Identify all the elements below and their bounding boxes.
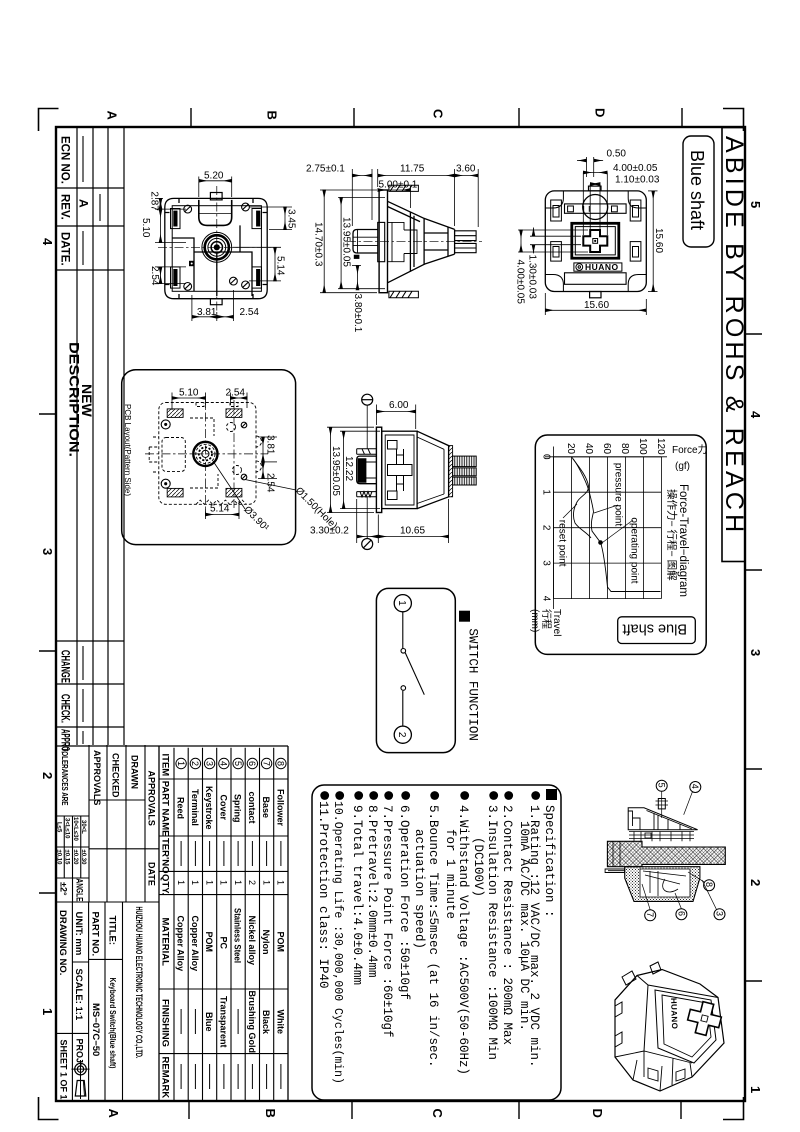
svg-text:HUANO: HUANO [669,998,679,1030]
svg-text:CHANGE.: CHANGE. [59,650,71,685]
svg-text:6: 6 [676,911,686,916]
svg-text:7: 7 [645,912,655,917]
svg-text:40: 40 [583,443,594,455]
svg-text:PART NO.: PART NO. [90,912,101,957]
svg-text:1.10±0.03: 1.10±0.03 [615,175,660,186]
svg-text:7: 7 [261,761,271,766]
svg-text:120: 120 [655,438,666,455]
svg-text:DATE: DATE [147,862,157,886]
svg-text:4: 4 [541,596,552,602]
svg-text:3: 3 [40,548,55,555]
svg-text:5.14: 5.14 [275,256,286,276]
svg-text:TER'NO: TER'NO [160,838,171,874]
svg-text:POM: POM [204,932,214,953]
svg-text:HUANO: HUANO [585,262,619,272]
svg-text:1: 1 [176,761,186,766]
svg-text:±0.30: ±0.30 [80,850,86,866]
svg-text:Reed: Reed [176,797,186,819]
svg-text:9.Total travel:4.0±0.4mm: 9.Total travel:4.0±0.4mm [350,805,364,985]
svg-text:6.Operation Force :50±10gf: 6.Operation Force :50±10gf [397,805,411,1000]
svg-text:5: 5 [657,783,667,788]
svg-text:PCB Layout(Pattern Side): PCB Layout(Pattern Side) [123,404,132,496]
svg-text:2: 2 [541,525,552,531]
svg-text:B: B [263,1109,278,1118]
svg-text:Terminal: Terminal [190,789,200,826]
svg-text:3.Insulation Resistance :100MΩ: 3.Insulation Resistance :100MΩ Min [485,805,499,1060]
svg-text:5.Bounce Time:≤5msec (at 16 in: 5.Bounce Time:≤5msec (at 16 in/sec. [426,805,440,1068]
svg-text:operating point: operating point [628,517,639,583]
svg-text:5: 5 [233,761,243,766]
svg-text:FINISHING: FINISHING [160,999,171,1047]
svg-text:ANGLE: ANGLE [75,879,85,902]
svg-text:4.00±0.05: 4.00±0.05 [613,163,658,174]
svg-text:D: D [593,108,608,117]
svg-text:5.00±0.1: 5.00±0.1 [379,180,418,191]
svg-text:ABIDE BY ROHS & REACH: ABIDE BY ROHS & REACH [720,136,748,536]
svg-text:2: 2 [396,732,407,738]
svg-text:行程: 行程 [540,609,553,629]
svg-text:14.70±0.3: 14.70±0.3 [313,222,324,267]
svg-text:2.87: 2.87 [149,191,160,211]
svg-text:B: B [265,111,280,120]
svg-text:Copper Alloy: Copper Alloy [176,916,186,972]
svg-text:1: 1 [276,880,286,885]
svg-text:Nickel alloy: Nickel alloy [247,916,257,966]
svg-text:Black: Black [261,1010,271,1035]
svg-text:11.Protection class: IP40: 11.Protection class: IP40 [316,801,330,989]
svg-text:SWITCH FUNCTION: SWITCH FUNCTION [466,628,480,741]
svg-text:11.75: 11.75 [400,164,425,175]
svg-text:Nylon: Nylon [261,930,271,955]
svg-text:3: 3 [748,649,763,656]
svg-text:Base: Base [261,797,271,819]
svg-text:Stainless Steel: Stainless Steel [233,908,243,963]
svg-text:(DC100V): (DC100V) [471,837,485,897]
svg-text:1: 1 [748,1086,763,1093]
svg-text:White: White [275,1010,285,1035]
svg-text:C: C [430,1109,445,1119]
svg-text:Copper Alloy: Copper Alloy [190,916,200,972]
svg-text:2: 2 [40,772,55,779]
svg-text:3: 3 [714,911,724,916]
svg-text:4: 4 [748,411,763,419]
svg-text:for 1 minute: for 1 minute [443,829,457,919]
svg-text:4: 4 [219,761,229,766]
svg-text:2.75±0.1: 2.75±0.1 [306,164,345,175]
svg-text:2: 2 [247,880,257,885]
svg-text:ECN NO.: ECN NO. [59,136,71,184]
svg-text:4.00±0.05: 4.00±0.05 [515,260,526,305]
svg-text:20: 20 [565,443,576,455]
svg-text:A: A [106,1109,121,1119]
svg-text:±2°: ±2° [59,882,69,896]
svg-text:Force力: Force力 [672,443,708,456]
svg-text:6.00: 6.00 [389,400,409,411]
svg-text:2.54: 2.54 [240,307,260,318]
svg-text:1: 1 [233,880,243,885]
svg-text:3<L≤10: 3<L≤10 [64,818,70,839]
svg-text:Cover: Cover [218,795,228,821]
svg-text:1: 1 [219,880,229,885]
svg-text:±0.10: ±0.10 [55,850,61,866]
svg-text:CHECKED: CHECKED [111,753,121,798]
svg-text:2.54: 2.54 [226,388,246,399]
svg-text:1: 1 [190,880,200,885]
svg-text:操作力− 行程− 图解: 操作力− 行程− 图解 [666,489,679,581]
svg-text:5.10: 5.10 [179,388,199,399]
svg-text:4: 4 [40,238,55,246]
svg-text:Blue shaft: Blue shaft [687,150,707,230]
svg-text:13.95±0.05: 13.95±0.05 [330,446,341,496]
svg-text:12.22: 12.22 [343,456,354,481]
svg-text:2.Contact Resistance : 200mΩ M: 2.Contact Resistance : 200mΩ Max [500,805,514,1045]
svg-text:3.60: 3.60 [456,164,476,175]
svg-text:MS−07C−50: MS−07C−50 [90,1003,101,1056]
svg-text:60: 60 [601,443,612,455]
svg-text:1: 1 [396,600,407,606]
svg-text:Keystroke: Keystroke [204,786,214,830]
svg-text:2.54: 2.54 [265,473,276,493]
svg-text:UNIT: mm: UNIT: mm [73,912,84,956]
svg-text:Travel: Travel [551,609,562,636]
svg-text:ITEM: ITEM [160,754,171,777]
svg-text:DATE.: DATE. [59,232,71,266]
svg-text:PROJ:: PROJ: [75,1039,85,1067]
svg-text:10.Operating Life :30,000,000: 10.Operating Life :30,000,000 Cycles(min… [331,801,344,1084]
svg-text:Blue: Blue [204,1012,214,1032]
svg-text:A: A [77,199,91,208]
svg-text:Spring: Spring [233,794,243,823]
svg-text:15.60: 15.60 [653,228,664,253]
svg-text:C: C [431,109,446,119]
svg-text:6: 6 [247,761,257,766]
svg-text:SCALE: 1:1: SCALE: 1:1 [73,969,84,1021]
svg-text:PC: PC [218,937,228,950]
svg-text:A: A [105,111,120,121]
svg-text:7.Pressure Point Force :60±10g: 7.Pressure Point Force :60±10gf [380,805,394,1038]
svg-text:10mA AC/DC max. 10μA DC min.: 10mA AC/DC max. 10μA DC min. [517,821,531,1031]
svg-text:REV.: REV. [59,194,71,220]
svg-text:15.60: 15.60 [584,300,609,311]
svg-text:0.50: 0.50 [607,149,627,160]
svg-text:5.20: 5.20 [204,171,224,182]
svg-text:PART NAME: PART NAME [160,781,171,837]
svg-text:8.Pretravel:2.0mm±0.4mm: 8.Pretravel:2.0mm±0.4mm [365,805,379,978]
svg-text:80: 80 [619,443,630,455]
svg-text:reset point: reset point [557,520,568,567]
svg-text:MATERIAL: MATERIAL [160,918,171,967]
svg-text:DRAWING NO.: DRAWING NO. [57,910,68,975]
svg-text:1: 1 [40,1008,55,1015]
svg-text:3.81: 3.81 [265,435,276,455]
svg-text:Force-Travel−diagram: Force-Travel−diagram [677,484,689,597]
svg-text:1: 1 [204,880,214,885]
svg-text:1: 1 [176,880,186,885]
svg-text:pressure point: pressure point [613,463,624,527]
svg-text:(gf): (gf) [675,461,690,472]
svg-text:0: 0 [541,454,552,460]
svg-text:3.81: 3.81 [197,307,217,318]
svg-text:DRAWN: DRAWN [130,755,140,789]
svg-text:3: 3 [204,761,214,766]
svg-text:Brushing Gold: Brushing Gold [247,991,257,1054]
svg-text:CHECK.: CHECK. [59,694,71,723]
svg-text:QTY.: QTY. [160,874,171,895]
svg-text:(mm): (mm) [529,609,540,632]
svg-text:2: 2 [748,879,763,886]
svg-text:4.Withstand Voltage :AC500V(50: 4.Withstand Voltage :AC500V(50-60Hz) [456,805,470,1075]
svg-text:TITLE:: TITLE: [107,916,118,946]
svg-text:APPROVALS: APPROVALS [92,750,102,805]
svg-text:HUIZHOU HUANO ELECTRONIC TECHN: HUIZHOU HUANO ELECTRONIC TECHNOLOGY CO.,… [134,907,144,1059]
svg-text:Transparent: Transparent [218,996,228,1048]
svg-text:3: 3 [541,560,552,566]
svg-text:Keyboard Switch(Blue shaft): Keyboard Switch(Blue shaft) [108,978,118,1069]
svg-text:13.95±0.05: 13.95±0.05 [341,217,352,267]
svg-text:contact: contact [247,792,257,824]
svg-text:8: 8 [276,761,286,766]
svg-text:L≤5: L≤5 [55,822,61,833]
svg-text:5.10: 5.10 [140,218,151,238]
svg-text:DESCRIPTION.: DESCRIPTION. [67,342,83,457]
svg-text:SHEET 1 OF 1: SHEET 1 OF 1 [59,1040,69,1100]
svg-text:10<L≤30: 10<L≤30 [72,817,78,841]
svg-text:REMARK: REMARK [160,1057,171,1099]
svg-text:actuation speed): actuation speed) [412,829,426,949]
svg-text:2.54: 2.54 [149,266,160,286]
svg-text:±0.15: ±0.15 [64,850,70,866]
svg-text:2: 2 [190,761,200,766]
svg-text:10.65: 10.65 [400,526,425,537]
svg-text:TOLERANCES ARE: TOLERANCES ARE [60,748,69,807]
svg-text:1: 1 [261,880,271,885]
svg-text:3.80±0.1: 3.80±0.1 [352,294,363,333]
svg-text:D: D [590,1109,605,1118]
svg-text:8: 8 [704,882,714,887]
svg-text:±0.20: ±0.20 [72,850,78,866]
svg-text:Specification :: Specification : [542,805,556,918]
svg-text:Blue shaft: Blue shaft [623,621,688,637]
svg-text:5.14: 5.14 [210,504,230,515]
svg-text:30<L: 30<L [80,820,86,834]
svg-text:POM: POM [275,932,285,953]
svg-text:Follower: Follower [275,789,285,826]
svg-text:APPROVALS: APPROVALS [147,771,157,826]
svg-text:3.45: 3.45 [286,209,297,229]
svg-text:1.30±0.03: 1.30±0.03 [527,255,538,300]
svg-text:100: 100 [637,438,648,455]
svg-text:5: 5 [748,201,763,208]
svg-text:1: 1 [541,489,552,495]
svg-text:4: 4 [690,784,700,789]
